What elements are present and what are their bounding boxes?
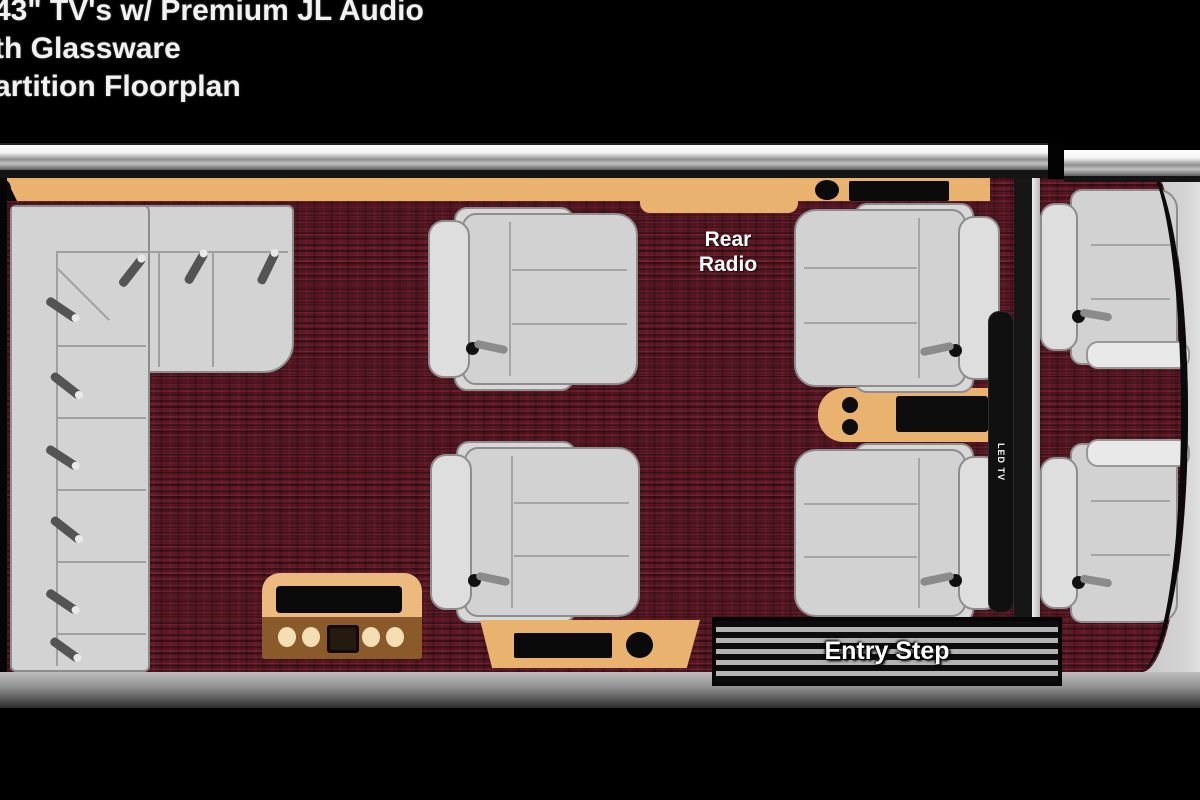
console-screen bbox=[896, 396, 988, 432]
led-tv-label: LED TV bbox=[989, 312, 1013, 612]
sofa-seam bbox=[56, 561, 146, 563]
speaker-icon bbox=[278, 627, 296, 647]
entry-counter bbox=[480, 620, 700, 668]
rear-counter bbox=[7, 177, 990, 201]
title-line-2: th Glassware bbox=[0, 30, 424, 68]
chair-seat bbox=[462, 213, 638, 385]
sofa-seam bbox=[56, 633, 146, 635]
chair-backrest bbox=[428, 220, 470, 378]
title-line-1: 43" TV's w/ Premium JL Audio bbox=[0, 0, 424, 30]
rear-edge bbox=[0, 170, 7, 681]
control-panel-icon bbox=[327, 625, 359, 653]
captain-chair bbox=[794, 203, 1000, 393]
cabinet-control-band bbox=[262, 617, 422, 659]
cupholder-icon bbox=[842, 397, 858, 413]
cabinet-tv-screen bbox=[276, 586, 402, 613]
speaker-icon bbox=[302, 627, 320, 647]
sofa-join-patch bbox=[12, 207, 146, 367]
l-shaped-sofa bbox=[10, 205, 294, 672]
sofa-seam bbox=[212, 251, 214, 367]
sofa-seam bbox=[58, 251, 288, 253]
media-cabinet bbox=[262, 573, 422, 659]
rear-radio-line-2: Radio bbox=[660, 252, 796, 277]
chair-seat bbox=[464, 447, 640, 617]
chair-seat bbox=[794, 209, 966, 387]
rear-tv-screen bbox=[849, 181, 949, 201]
entry-counter-sink-icon bbox=[626, 632, 653, 658]
speaker-icon bbox=[362, 627, 380, 647]
top-wall bbox=[0, 143, 1048, 170]
wall-gap bbox=[1048, 143, 1064, 179]
chair-seat bbox=[794, 449, 966, 617]
title-line-3: artition Floorplan bbox=[0, 68, 424, 106]
partition-wall bbox=[1014, 163, 1032, 677]
chair-backrest bbox=[430, 454, 472, 610]
captain-chair bbox=[430, 441, 640, 623]
drink-console bbox=[818, 388, 994, 442]
rear-radio-label: Rear Radio bbox=[660, 227, 796, 277]
rear-counter-tongue bbox=[640, 199, 798, 213]
vehicle-floorplan: LED TV Rear Radio Entry Step bbox=[0, 143, 1200, 708]
captain-chair bbox=[794, 443, 1000, 623]
cupholder-icon bbox=[842, 419, 858, 435]
front-top-wall-trim bbox=[1064, 176, 1200, 182]
sofa-seam bbox=[56, 489, 146, 491]
led-tv: LED TV bbox=[988, 311, 1014, 613]
sofa-seam bbox=[56, 345, 146, 347]
entry-counter-tv bbox=[514, 633, 612, 658]
sofa-seam bbox=[56, 417, 146, 419]
floorplan-title: 43" TV's w/ Premium JL Audio th Glasswar… bbox=[0, 0, 424, 106]
entry-step-label: Entry Step bbox=[824, 637, 949, 666]
sofa-seam bbox=[158, 251, 160, 367]
entry-step: Entry Step bbox=[712, 617, 1062, 686]
bar-sink-icon bbox=[815, 180, 839, 200]
top-wall-trim bbox=[0, 170, 1048, 178]
windshield-outline bbox=[1039, 157, 1188, 672]
front-top-wall bbox=[1064, 150, 1200, 176]
captain-chair bbox=[428, 207, 638, 391]
speaker-icon bbox=[386, 627, 404, 647]
rear-radio-line-1: Rear bbox=[660, 227, 796, 252]
